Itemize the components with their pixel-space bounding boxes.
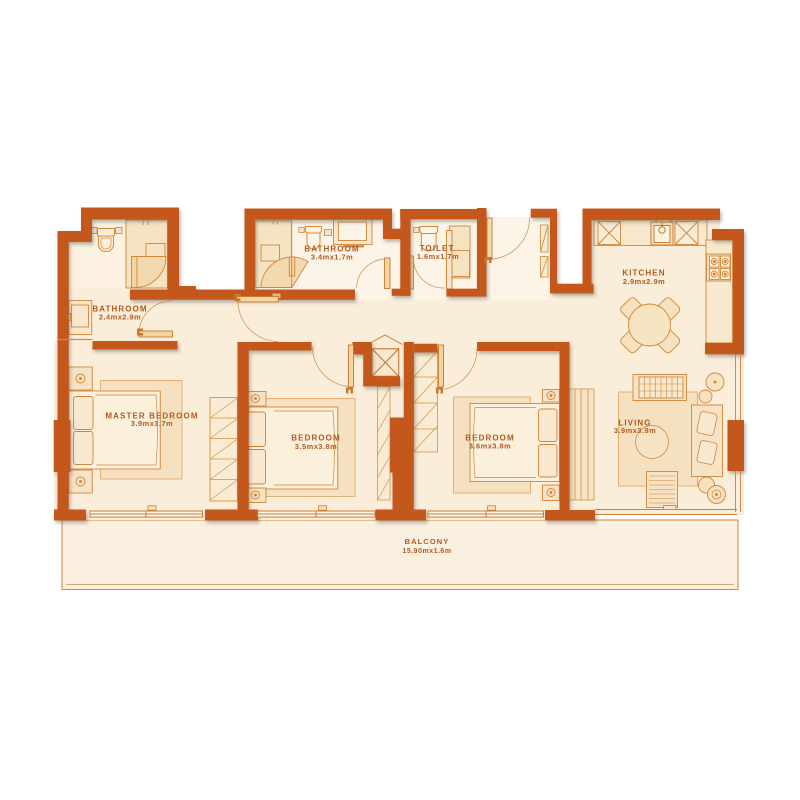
svg-text:2.4mx2.9m: 2.4mx2.9m bbox=[99, 313, 141, 322]
svg-text:3.6mx3.8m: 3.6mx3.8m bbox=[469, 442, 511, 451]
svg-text:15.90mx1.6m: 15.90mx1.6m bbox=[402, 548, 451, 555]
svg-text:3.9mx3.9m: 3.9mx3.9m bbox=[614, 426, 656, 435]
svg-text:BALCONY: BALCONY bbox=[405, 537, 450, 546]
svg-text:1.6mx1.7m: 1.6mx1.7m bbox=[417, 252, 459, 261]
svg-text:2.9mx2.9m: 2.9mx2.9m bbox=[623, 277, 665, 286]
svg-text:3.5mx3.8m: 3.5mx3.8m bbox=[295, 442, 337, 451]
svg-text:3.9mx3.7m: 3.9mx3.7m bbox=[131, 419, 173, 428]
svg-text:3.4mx1.7m: 3.4mx1.7m bbox=[311, 253, 353, 262]
